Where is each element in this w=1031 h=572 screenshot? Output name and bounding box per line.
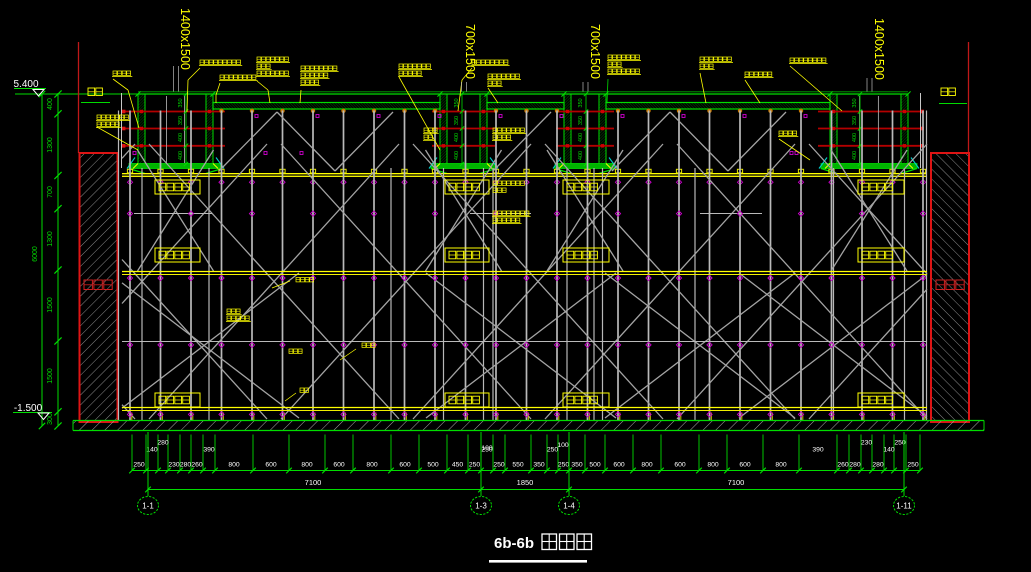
svg-text:800: 800 <box>366 462 378 469</box>
svg-text:350: 350 <box>852 98 858 107</box>
svg-text:400: 400 <box>578 133 584 142</box>
svg-text:250: 250 <box>558 462 570 469</box>
svg-text:1300: 1300 <box>47 231 54 247</box>
svg-text:230: 230 <box>168 462 180 469</box>
svg-text:100: 100 <box>481 445 493 452</box>
svg-text:600: 600 <box>399 462 411 469</box>
svg-text:600: 600 <box>674 462 686 469</box>
svg-text:230: 230 <box>861 440 873 447</box>
svg-text:1-1: 1-1 <box>142 502 154 511</box>
svg-text:350: 350 <box>454 116 460 125</box>
svg-text:400: 400 <box>178 151 184 160</box>
svg-text:280: 280 <box>849 462 861 469</box>
svg-text:280: 280 <box>157 440 169 447</box>
svg-text:6b-6b: 6b-6b <box>494 535 534 552</box>
svg-text:350: 350 <box>578 98 584 107</box>
svg-text:140: 140 <box>883 447 895 454</box>
svg-text:350: 350 <box>852 116 858 125</box>
svg-text:350: 350 <box>178 98 184 107</box>
svg-text:550: 550 <box>512 462 524 469</box>
svg-text:600: 600 <box>333 462 345 469</box>
svg-text:7100: 7100 <box>305 478 322 487</box>
svg-text:700x1500: 700x1500 <box>588 24 602 79</box>
svg-text:250: 250 <box>469 462 481 469</box>
svg-text:800: 800 <box>228 462 240 469</box>
svg-text:450: 450 <box>452 462 464 469</box>
svg-text:100: 100 <box>557 442 569 449</box>
svg-text:280: 280 <box>180 462 192 469</box>
svg-text:500: 500 <box>589 462 601 469</box>
svg-text:700: 700 <box>47 186 54 198</box>
svg-text:400: 400 <box>454 133 460 142</box>
svg-text:800: 800 <box>707 462 719 469</box>
svg-text:800: 800 <box>301 462 313 469</box>
svg-text:800: 800 <box>641 462 653 469</box>
svg-text:500: 500 <box>427 462 439 469</box>
svg-text:390: 390 <box>203 447 215 454</box>
svg-text:1850: 1850 <box>517 478 534 487</box>
svg-text:600: 600 <box>265 462 277 469</box>
svg-text:1300: 1300 <box>47 137 54 153</box>
svg-text:1-11: 1-11 <box>896 502 912 511</box>
svg-text:7100: 7100 <box>728 478 745 487</box>
svg-text:400: 400 <box>178 133 184 142</box>
svg-text:400: 400 <box>578 151 584 160</box>
svg-text:1400x1500: 1400x1500 <box>872 18 886 80</box>
svg-text:400: 400 <box>47 98 54 110</box>
svg-text:1-4: 1-4 <box>563 502 575 511</box>
svg-text:600: 600 <box>613 462 625 469</box>
svg-text:800: 800 <box>775 462 787 469</box>
svg-text:280: 280 <box>872 462 884 469</box>
svg-text:400: 400 <box>454 151 460 160</box>
svg-text:390: 390 <box>812 447 824 454</box>
svg-text:6000: 6000 <box>32 246 39 262</box>
svg-text:1400x1500: 1400x1500 <box>178 8 192 70</box>
svg-text:350: 350 <box>571 462 583 469</box>
svg-text:260: 260 <box>837 462 849 469</box>
svg-text:350: 350 <box>178 116 184 125</box>
svg-text:1500: 1500 <box>47 368 54 384</box>
svg-text:400: 400 <box>852 151 858 160</box>
svg-text:260: 260 <box>191 462 203 469</box>
svg-text:250: 250 <box>907 462 919 469</box>
svg-text:600: 600 <box>739 462 751 469</box>
svg-text:250: 250 <box>493 462 505 469</box>
svg-text:1500: 1500 <box>47 297 54 313</box>
svg-text:400: 400 <box>852 133 858 142</box>
svg-text:700x1500: 700x1500 <box>463 24 477 79</box>
svg-text:250: 250 <box>133 462 145 469</box>
svg-text:350: 350 <box>578 116 584 125</box>
svg-text:350: 350 <box>533 462 545 469</box>
svg-text:1-3: 1-3 <box>475 502 487 511</box>
